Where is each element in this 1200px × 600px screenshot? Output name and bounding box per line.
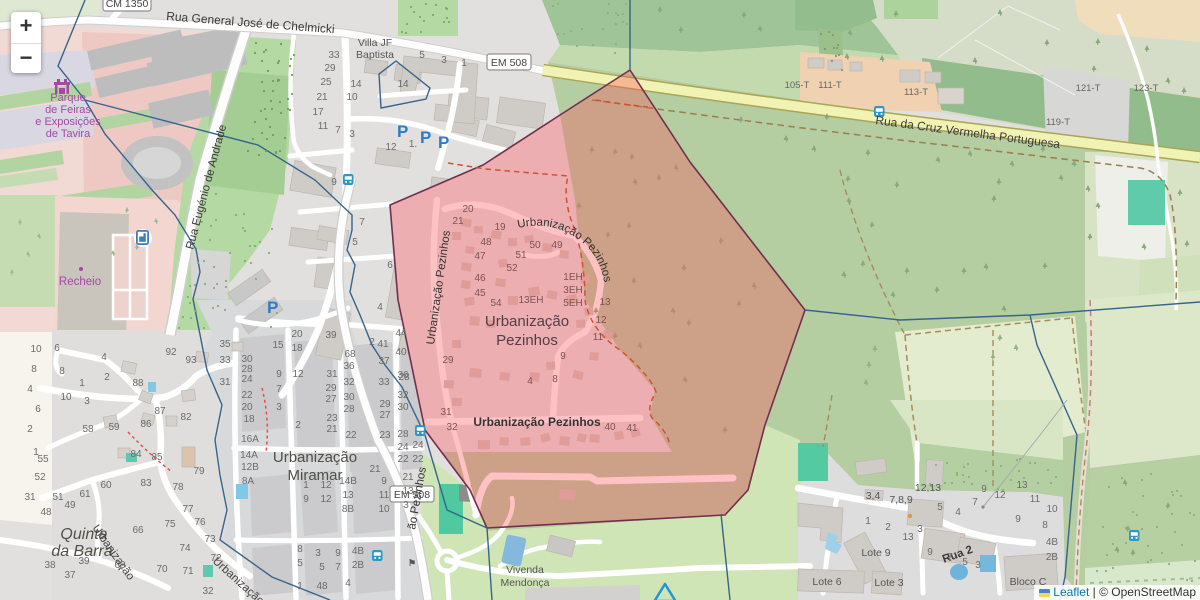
svg-text:66: 66 <box>132 525 144 536</box>
svg-text:8: 8 <box>59 366 65 377</box>
svg-text:3,4: 3,4 <box>866 490 881 502</box>
svg-text:47: 47 <box>474 251 486 262</box>
svg-text:5: 5 <box>962 557 968 568</box>
svg-text:29: 29 <box>324 63 336 74</box>
svg-text:9: 9 <box>927 547 933 558</box>
svg-text:85: 85 <box>151 452 163 463</box>
svg-text:29: 29 <box>442 355 454 366</box>
svg-text:33: 33 <box>219 355 231 366</box>
svg-text:72: 72 <box>210 553 222 564</box>
svg-text:30: 30 <box>343 392 355 403</box>
svg-text:12: 12 <box>320 480 332 491</box>
svg-text:13: 13 <box>342 490 354 501</box>
svg-text:CM 1350: CM 1350 <box>106 0 149 10</box>
svg-text:Urbanização: Urbanização <box>485 313 569 330</box>
svg-text:40: 40 <box>604 422 616 433</box>
svg-text:P: P <box>438 133 449 152</box>
svg-text:12: 12 <box>994 490 1006 501</box>
svg-text:13: 13 <box>402 486 414 497</box>
svg-text:84: 84 <box>130 449 142 460</box>
svg-text:4: 4 <box>955 507 961 518</box>
svg-text:1.: 1. <box>409 139 417 150</box>
svg-text:2B: 2B <box>1046 552 1059 563</box>
svg-text:119-T: 119-T <box>1046 117 1070 128</box>
svg-text:14A: 14A <box>240 450 258 461</box>
svg-text:9: 9 <box>303 494 309 505</box>
svg-text:52: 52 <box>34 472 46 483</box>
svg-text:12: 12 <box>320 494 332 505</box>
svg-text:10: 10 <box>30 344 42 355</box>
svg-text:35: 35 <box>219 339 231 350</box>
svg-text:P: P <box>420 128 431 147</box>
svg-text:9: 9 <box>560 351 566 362</box>
svg-text:33: 33 <box>328 50 340 61</box>
svg-text:4B: 4B <box>352 546 365 557</box>
svg-text:4: 4 <box>377 302 383 313</box>
svg-text:23: 23 <box>326 413 338 424</box>
svg-text:93: 93 <box>185 355 197 366</box>
svg-text:Villa JF: Villa JF <box>358 37 392 49</box>
svg-text:11: 11 <box>593 332 604 343</box>
svg-text:14B: 14B <box>339 476 357 487</box>
svg-text:12: 12 <box>292 369 304 380</box>
svg-text:8A: 8A <box>242 476 255 487</box>
svg-text:19: 19 <box>494 222 506 233</box>
svg-text:36: 36 <box>343 361 355 372</box>
svg-text:5: 5 <box>297 558 303 569</box>
svg-text:48: 48 <box>40 507 52 518</box>
svg-text:18: 18 <box>243 414 255 425</box>
svg-text:55: 55 <box>37 454 49 465</box>
svg-text:32: 32 <box>397 390 409 401</box>
svg-text:9: 9 <box>335 548 341 559</box>
svg-text:Urbanização: Urbanização <box>273 449 357 466</box>
svg-text:3: 3 <box>276 402 282 413</box>
svg-text:52: 52 <box>506 263 518 274</box>
svg-text:59: 59 <box>108 422 120 433</box>
svg-text:1: 1 <box>865 516 871 527</box>
svg-text:12,13: 12,13 <box>915 482 941 494</box>
svg-text:22: 22 <box>397 454 409 465</box>
svg-text:21: 21 <box>326 424 338 435</box>
svg-text:87: 87 <box>154 406 166 417</box>
svg-text:20: 20 <box>462 204 474 215</box>
svg-text:24: 24 <box>397 442 409 453</box>
svg-text:58: 58 <box>82 424 94 435</box>
svg-text:28: 28 <box>343 404 355 415</box>
svg-text:60: 60 <box>100 480 112 491</box>
svg-text:6: 6 <box>54 343 60 354</box>
svg-text:13: 13 <box>1016 480 1028 491</box>
svg-text:2: 2 <box>295 420 301 431</box>
svg-text:54: 54 <box>490 298 502 309</box>
svg-text:46: 46 <box>474 273 486 284</box>
svg-text:1: 1 <box>297 581 303 592</box>
svg-text:79: 79 <box>193 466 205 477</box>
svg-text:10: 10 <box>60 392 72 403</box>
svg-text:40: 40 <box>395 347 407 358</box>
svg-text:30: 30 <box>397 402 409 413</box>
svg-text:32: 32 <box>446 422 458 433</box>
svg-text:11: 11 <box>1030 494 1041 505</box>
svg-text:7: 7 <box>947 552 953 563</box>
svg-text:P: P <box>267 298 278 317</box>
svg-text:123-T: 123-T <box>1134 83 1159 94</box>
svg-text:11: 11 <box>318 121 329 132</box>
svg-text:⚑: ⚑ <box>408 558 416 568</box>
svg-text:76: 76 <box>194 517 206 528</box>
svg-text:4: 4 <box>101 352 107 363</box>
svg-text:4: 4 <box>27 384 33 395</box>
svg-text:15: 15 <box>272 340 284 351</box>
svg-text:10: 10 <box>1046 504 1058 515</box>
svg-text:16A: 16A <box>241 434 259 445</box>
svg-text:2: 2 <box>369 337 375 348</box>
svg-text:EM 508: EM 508 <box>491 57 527 69</box>
svg-text:8: 8 <box>1042 520 1048 531</box>
svg-text:29: 29 <box>379 399 391 410</box>
svg-text:22: 22 <box>412 454 424 465</box>
svg-text:7: 7 <box>972 497 978 508</box>
svg-text:2B: 2B <box>352 560 365 571</box>
svg-text:37: 37 <box>378 356 390 367</box>
svg-text:49: 49 <box>551 240 563 251</box>
svg-text:20: 20 <box>291 329 303 340</box>
svg-text:51: 51 <box>52 492 64 503</box>
svg-text:22: 22 <box>241 390 253 401</box>
svg-text:61: 61 <box>79 489 91 500</box>
svg-text:23: 23 <box>379 430 391 441</box>
svg-text:31: 31 <box>219 377 231 388</box>
svg-text:Lote 3: Lote 3 <box>874 577 903 589</box>
svg-text:3: 3 <box>917 524 923 535</box>
svg-text:11: 11 <box>379 490 390 501</box>
svg-text:44: 44 <box>395 328 407 339</box>
svg-text:3: 3 <box>349 129 355 140</box>
svg-text:22: 22 <box>345 430 357 441</box>
svg-text:e Exposições: e Exposições <box>35 116 101 128</box>
svg-text:71: 71 <box>182 566 194 577</box>
svg-text:Lote 6: Lote 6 <box>812 576 841 588</box>
svg-text:12B: 12B <box>241 462 259 473</box>
svg-text:Recheio: Recheio <box>59 276 101 288</box>
svg-text:24: 24 <box>412 440 424 451</box>
svg-text:Vivenda: Vivenda <box>506 564 544 576</box>
svg-text:51: 51 <box>515 250 527 261</box>
svg-text:24: 24 <box>241 374 253 385</box>
svg-text:88: 88 <box>132 378 144 389</box>
svg-text:Lote 9: Lote 9 <box>861 547 890 559</box>
svg-text:3EH: 3EH <box>563 285 582 296</box>
svg-text:113-T: 113-T <box>904 87 928 98</box>
svg-text:9: 9 <box>1015 514 1021 525</box>
svg-text:14: 14 <box>350 79 362 90</box>
svg-text:de Tavira: de Tavira <box>46 128 91 140</box>
svg-text:83: 83 <box>140 478 152 489</box>
svg-text:39: 39 <box>78 556 90 567</box>
svg-text:2: 2 <box>27 424 33 435</box>
svg-text:39: 39 <box>325 330 337 341</box>
svg-text:1: 1 <box>79 378 85 389</box>
svg-text:5: 5 <box>352 237 358 248</box>
svg-text:12: 12 <box>595 315 607 326</box>
svg-text:28: 28 <box>398 372 410 383</box>
svg-text:37: 37 <box>64 570 76 581</box>
svg-text:20: 20 <box>241 402 253 413</box>
svg-text:73: 73 <box>204 534 216 545</box>
svg-text:48: 48 <box>316 581 328 592</box>
svg-text:7: 7 <box>276 384 282 395</box>
svg-text:70: 70 <box>156 564 168 575</box>
svg-text:21: 21 <box>452 216 464 227</box>
svg-text:3: 3 <box>84 396 90 407</box>
svg-text:31: 31 <box>440 407 452 418</box>
svg-text:18: 18 <box>291 343 303 354</box>
svg-text:69: 69 <box>114 560 126 571</box>
svg-text:75: 75 <box>164 519 176 530</box>
svg-text:2: 2 <box>885 522 891 533</box>
svg-text:9: 9 <box>981 484 987 495</box>
svg-text:13: 13 <box>599 297 611 308</box>
svg-text:32: 32 <box>202 586 214 597</box>
svg-text:Miramar: Miramar <box>288 467 343 484</box>
svg-text:86: 86 <box>140 419 152 430</box>
svg-text:78: 78 <box>172 482 184 493</box>
svg-text:3: 3 <box>315 548 321 559</box>
svg-text:13: 13 <box>902 532 914 543</box>
svg-text:4B: 4B <box>1046 537 1059 548</box>
svg-text:2: 2 <box>104 372 110 383</box>
svg-text:49: 49 <box>64 500 76 511</box>
svg-text:de Feiras: de Feiras <box>45 104 91 116</box>
svg-text:7: 7 <box>335 125 341 136</box>
svg-text:21: 21 <box>316 92 328 103</box>
svg-text:13EH: 13EH <box>518 295 543 306</box>
svg-text:33: 33 <box>378 377 390 388</box>
svg-text:Parque: Parque <box>50 92 85 104</box>
svg-text:77: 77 <box>182 504 194 515</box>
svg-text:9: 9 <box>276 369 282 380</box>
svg-text:1: 1 <box>303 480 309 491</box>
svg-text:29: 29 <box>325 383 337 394</box>
svg-text:5: 5 <box>937 502 943 513</box>
svg-text:3: 3 <box>975 560 981 571</box>
svg-text:38: 38 <box>44 560 56 571</box>
svg-text:9: 9 <box>331 177 337 188</box>
svg-text:28: 28 <box>397 429 409 440</box>
svg-text:41: 41 <box>626 423 638 434</box>
svg-text:3: 3 <box>441 55 447 66</box>
svg-text:50: 50 <box>529 240 541 251</box>
svg-text:1: 1 <box>461 58 467 69</box>
svg-text:25: 25 <box>320 77 332 88</box>
svg-text:82: 82 <box>180 412 192 423</box>
svg-text:5: 5 <box>419 50 425 61</box>
svg-text:Mendonça: Mendonça <box>500 577 549 589</box>
svg-text:21: 21 <box>369 464 381 475</box>
svg-text:7: 7 <box>359 217 365 228</box>
svg-text:68: 68 <box>344 349 356 360</box>
svg-text:P: P <box>397 122 408 141</box>
svg-text:27: 27 <box>325 394 337 405</box>
svg-text:8: 8 <box>31 364 37 375</box>
svg-text:6: 6 <box>387 260 393 271</box>
svg-text:1EH: 1EH <box>563 272 582 283</box>
svg-text:9: 9 <box>381 476 387 487</box>
svg-text:4: 4 <box>527 376 533 387</box>
svg-text:45: 45 <box>474 288 486 299</box>
svg-text:8: 8 <box>297 544 303 555</box>
svg-text:10: 10 <box>346 92 358 103</box>
svg-text:32: 32 <box>343 377 355 388</box>
svg-text:3: 3 <box>403 500 409 511</box>
svg-text:74: 74 <box>179 543 191 554</box>
svg-text:Urbanização Pezinhos: Urbanização Pezinhos <box>473 415 601 429</box>
svg-text:10: 10 <box>378 504 390 515</box>
svg-text:5EH: 5EH <box>563 298 582 309</box>
svg-text:8: 8 <box>552 374 558 385</box>
svg-text:92: 92 <box>165 347 177 358</box>
svg-text:12: 12 <box>385 142 397 153</box>
svg-text:27: 27 <box>379 410 391 421</box>
svg-text:14: 14 <box>397 79 409 90</box>
svg-text:17: 17 <box>312 107 324 118</box>
svg-text:8B: 8B <box>342 504 355 515</box>
svg-text:121-T: 121-T <box>1076 83 1101 94</box>
svg-text:6: 6 <box>35 404 41 415</box>
svg-text:21: 21 <box>402 472 414 483</box>
svg-text:Baptista: Baptista <box>356 49 394 61</box>
svg-text:7: 7 <box>335 562 341 573</box>
svg-text:41: 41 <box>377 339 389 350</box>
svg-text:31: 31 <box>24 492 36 503</box>
svg-text:31: 31 <box>326 369 338 380</box>
svg-text:4: 4 <box>345 578 351 589</box>
svg-text:7,8,9: 7,8,9 <box>889 494 913 506</box>
svg-text:105-T: 105-T <box>785 80 810 91</box>
svg-text:48: 48 <box>480 237 492 248</box>
svg-text:Pezinhos: Pezinhos <box>496 332 558 349</box>
svg-text:5: 5 <box>319 562 325 573</box>
svg-text:111-T: 111-T <box>818 80 842 91</box>
